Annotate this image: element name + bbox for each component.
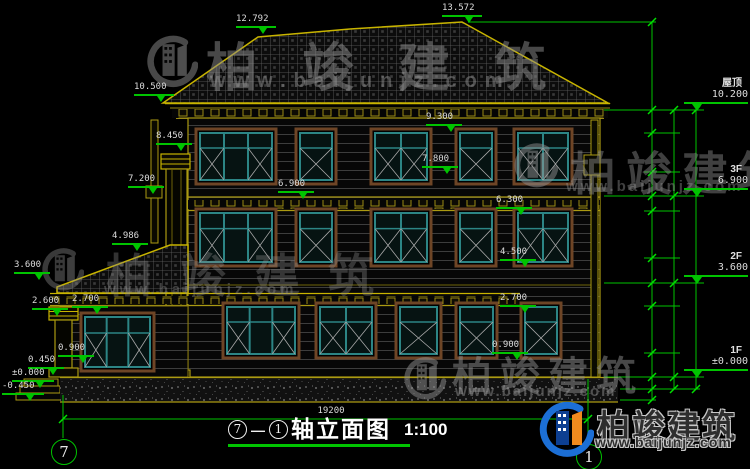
floor-level-marker: 屋顶 10.200 (684, 78, 748, 111)
ground-dimension: 19200 (296, 407, 366, 416)
title-scale: 1:100 (404, 421, 447, 438)
marker-line (500, 305, 536, 307)
window (316, 303, 376, 358)
marker-line (112, 243, 148, 245)
title-text: 轴立面图 (291, 418, 391, 441)
title-axis-to: 1 (269, 420, 288, 439)
floor-level-marker: 1F ±0.000 (684, 345, 748, 378)
marker-triangle-icon (465, 17, 473, 23)
watermark-url: www.baijunjz.com (210, 70, 511, 93)
marker-triangle-icon (53, 310, 61, 316)
marker-triangle-icon (157, 96, 165, 102)
marker-triangle-icon (26, 395, 34, 401)
drawing-title: 7 — 1 轴立面图 1:100 (228, 418, 447, 441)
marker-triangle-icon (521, 307, 529, 313)
marker-triangle-icon (149, 188, 157, 194)
watermark-url: www.baijunjz.com (104, 281, 297, 298)
watermark-logo (400, 350, 446, 406)
marker-line (32, 308, 68, 310)
elevation-marker: 13.572 (442, 4, 482, 23)
marker-triangle-icon (447, 126, 455, 132)
elevation-marker: 8.450 (156, 132, 192, 151)
marker-triangle-icon (517, 209, 525, 215)
marker-triangle-icon (513, 354, 521, 360)
marker-line (128, 186, 164, 188)
marker-line (236, 26, 276, 28)
floor-level-marker: 3F 6.900 (684, 164, 748, 197)
marker-line (500, 259, 536, 261)
marker-triangle-icon (692, 371, 702, 378)
title-axis-from: 7 (228, 420, 247, 439)
marker-line (134, 94, 174, 96)
elevation-marker: 2.600 (32, 297, 68, 316)
marker-triangle-icon (521, 261, 529, 267)
marker-triangle-icon (177, 145, 185, 151)
marker-triangle-icon (79, 357, 87, 363)
elevation-marker: 3.600 (14, 261, 50, 280)
cad-canvas: 柏竣建筑 www.baijunjz.com 柏竣建筑 www.baijunjz.… (0, 0, 750, 469)
axis-bubble-7: 7 (51, 439, 77, 465)
company-logo (534, 396, 594, 462)
marker-line (72, 306, 108, 308)
marker-line (14, 272, 50, 274)
marker-triangle-icon (443, 168, 451, 174)
marker-triangle-icon (692, 190, 702, 197)
elevation-marker: 4.500 (500, 248, 536, 267)
window (456, 209, 496, 266)
elevation-marker: 2.700 (72, 295, 108, 314)
marker-triangle-icon (692, 104, 702, 111)
floor-level-marker: 2F 3.600 (684, 251, 748, 284)
marker-triangle-icon (692, 277, 702, 284)
marker-triangle-icon (259, 28, 267, 34)
marker-line (2, 393, 44, 395)
elevation-marker: 10.500 (134, 83, 174, 102)
title-underline (228, 444, 410, 447)
elevation-marker: -0.450 (2, 382, 44, 401)
window (296, 129, 336, 184)
elevation-marker: 7.800 (422, 155, 458, 174)
marker-line (156, 143, 192, 145)
elevation-marker: 4.986 (112, 232, 148, 251)
marker-line (442, 15, 482, 17)
marker-triangle-icon (35, 274, 43, 280)
watermark-logo (510, 138, 558, 192)
marker-triangle-icon (93, 308, 101, 314)
elevation-marker: 9.300 (426, 113, 462, 132)
elevation-marker: 2.700 (500, 294, 536, 313)
marker-triangle-icon (133, 245, 141, 251)
marker-triangle-icon (299, 193, 307, 199)
marker-line (492, 352, 528, 354)
elevation-marker: 7.200 (128, 175, 164, 194)
main-eave (170, 108, 610, 119)
marker-line (496, 207, 532, 209)
elevation-marker: 6.300 (496, 196, 532, 215)
window (223, 303, 299, 358)
company-url: www.baijunjz.com (595, 434, 732, 450)
elevation-marker: 0.900 (492, 341, 528, 360)
marker-line (422, 166, 458, 168)
window (456, 129, 496, 184)
elevation-marker: 6.900 (278, 180, 314, 199)
title-dash: — (251, 423, 265, 437)
marker-line (278, 191, 314, 193)
window (196, 129, 276, 184)
elevation-marker: 12.792 (236, 15, 276, 34)
marker-line (426, 124, 462, 126)
